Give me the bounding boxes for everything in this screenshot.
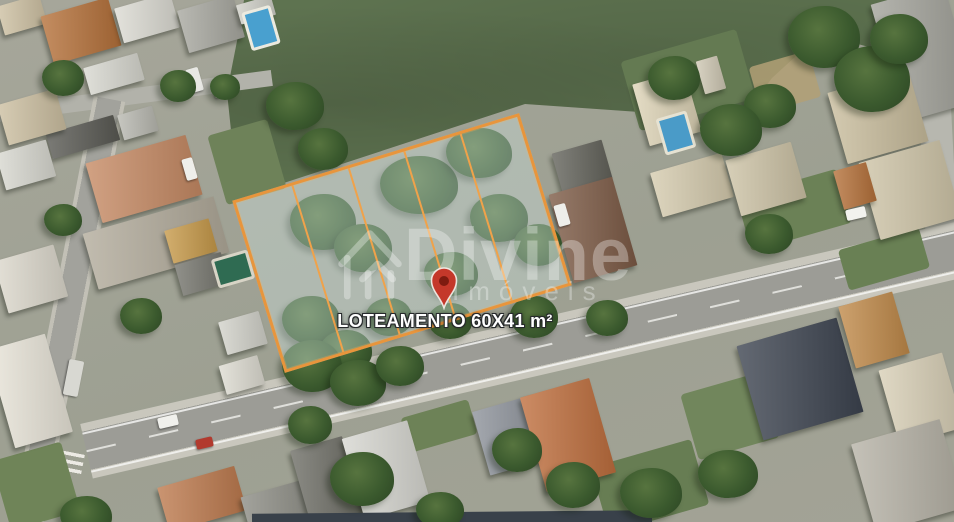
tree-canopy <box>266 82 324 130</box>
tree-canopy <box>60 496 112 522</box>
house-roof <box>650 153 734 218</box>
house-roof <box>218 311 268 355</box>
tree-canopy <box>870 14 928 64</box>
map-pin-icon <box>429 266 459 310</box>
location-pin[interactable] <box>429 266 459 310</box>
tree-canopy <box>648 56 700 100</box>
tree-canopy <box>298 128 348 170</box>
house-roof <box>838 292 909 369</box>
tree-canopy <box>210 74 240 100</box>
tree-canopy <box>745 214 793 254</box>
house-roof <box>851 419 954 522</box>
tree-canopy <box>416 492 464 522</box>
tree-canopy <box>330 452 394 506</box>
house-roof <box>177 0 245 53</box>
house-roof <box>40 0 121 65</box>
watermark-subtitle: Imóveis <box>452 278 605 304</box>
house-roof <box>0 140 56 191</box>
house-roof <box>157 466 247 522</box>
tree-canopy <box>546 462 600 508</box>
tree-canopy <box>620 468 682 518</box>
tree-canopy <box>376 346 424 386</box>
watermark-house-icon <box>334 224 406 300</box>
tree-canopy <box>492 428 542 472</box>
tree-canopy <box>44 204 82 236</box>
tree-canopy <box>42 60 84 96</box>
tree-canopy <box>288 406 332 444</box>
satellite-map-canvas[interactable]: Divine Imóveis LOTEAMENTO 60X41 m² <box>0 0 954 522</box>
house-roof <box>114 0 180 43</box>
tree-canopy <box>698 450 758 498</box>
parcel-label: LOTEAMENTO 60X41 m² <box>295 311 595 332</box>
tree-canopy <box>120 298 162 334</box>
tree-canopy <box>160 70 196 102</box>
tree-canopy <box>700 104 762 156</box>
